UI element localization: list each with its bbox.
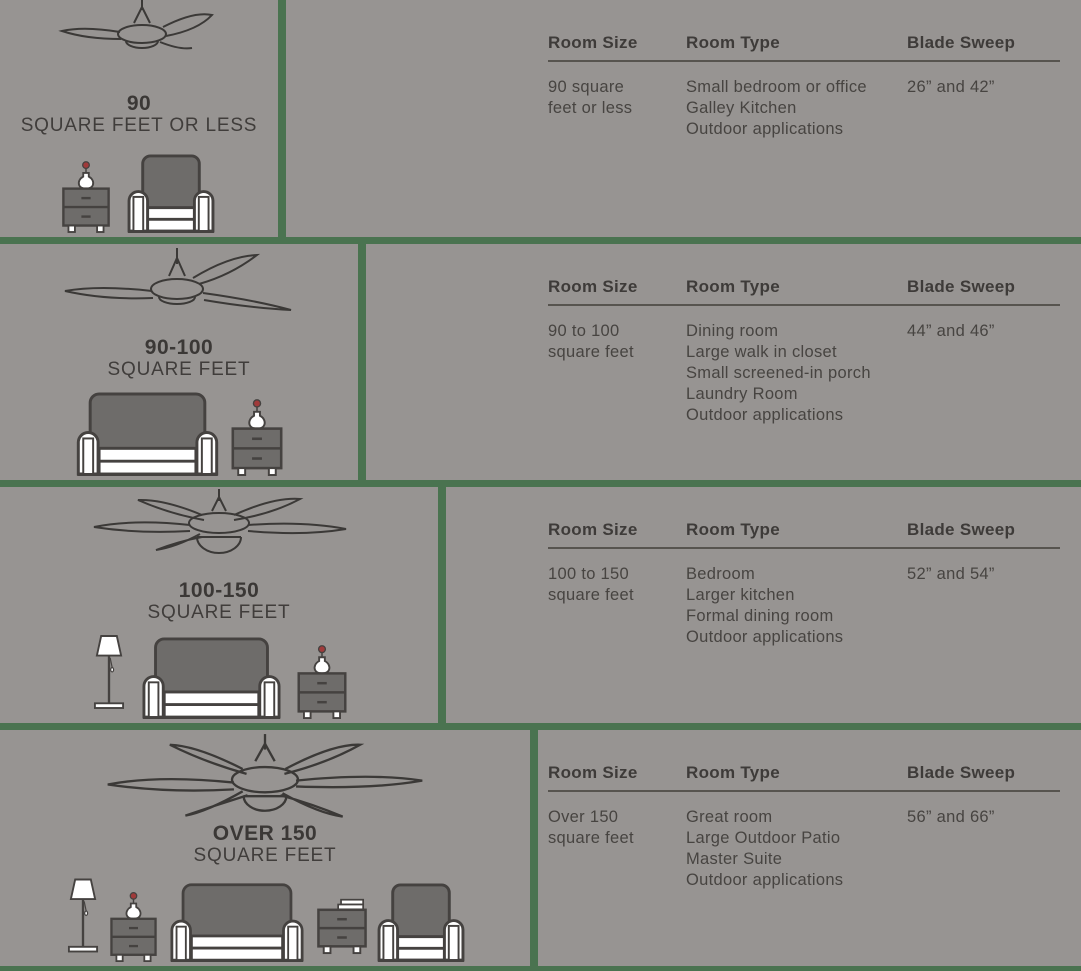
- blade-sweep-cell: 52” and 54”: [907, 564, 1060, 648]
- size-table: Room Size Room Type Blade Sweep 90 to 10…: [548, 244, 1060, 426]
- nightstand-with-vase-icon: [296, 643, 348, 719]
- blade-sweep-cell: 56” and 66”: [907, 807, 1060, 891]
- illustration-panel: 90 SQUARE FEET OR LESS: [0, 0, 278, 237]
- room-size-title: 90-100: [0, 337, 358, 359]
- armchair-icon: [126, 153, 216, 233]
- room-size-cell: Over 150square feet: [548, 807, 686, 891]
- size-table: Room Size Room Type Blade Sweep 90 squar…: [548, 0, 1060, 140]
- furniture-illustrations: [0, 153, 278, 233]
- column-header-room-type: Room Type: [686, 0, 907, 53]
- floor-lamp-icon: [65, 869, 101, 962]
- horizontal-divider: [0, 480, 1081, 487]
- nightstand-with-books-icon: [317, 898, 367, 962]
- room-size-cell: 100 to 150square feet: [548, 564, 686, 648]
- furniture-illustrations: [0, 391, 358, 476]
- loveseat-icon: [139, 636, 284, 719]
- room-type-cell: Small bedroom or officeGalley KitchenOut…: [686, 77, 907, 140]
- column-header-room-type: Room Type: [686, 244, 907, 297]
- horizontal-divider: [0, 237, 1081, 244]
- blade-sweep-cell: 26” and 42”: [907, 77, 1060, 140]
- row-over-150: OVER 150 SQUARE FEET Room Size Room Type…: [0, 730, 1081, 966]
- room-size-subtitle: SQUARE FEET: [0, 602, 438, 624]
- column-header-room-size: Room Size: [548, 244, 686, 297]
- column-header-room-size: Room Size: [548, 730, 686, 783]
- floor-lamp-icon: [91, 625, 127, 719]
- armchair-icon: [376, 882, 466, 962]
- row-90-or-less: 90 SQUARE FEET OR LESS Room Size Room Ty…: [0, 0, 1081, 237]
- column-header-blade-sweep: Blade Sweep: [907, 730, 1060, 783]
- room-size-cell: 90 squarefeet or less: [548, 77, 686, 140]
- nightstand-with-vase-icon: [62, 159, 110, 233]
- room-size-label: 90 SQUARE FEET OR LESS: [0, 93, 278, 137]
- header-underline: [548, 304, 1060, 306]
- ceiling-fan-3-blade-icon: [59, 248, 299, 332]
- size-table: Room Size Room Type Blade Sweep 100 to 1…: [548, 487, 1060, 648]
- room-size-subtitle: SQUARE FEET OR LESS: [0, 115, 278, 137]
- ceiling-fan-5-blade-light-icon: [84, 489, 354, 581]
- loveseat-icon: [75, 391, 220, 476]
- row-90-100: 90-100 SQUARE FEET Room Size Room Type B…: [0, 244, 1081, 480]
- room-size-label: 90-100 SQUARE FEET: [0, 337, 358, 381]
- nightstand-with-vase-icon: [231, 397, 283, 476]
- row-100-150: 100-150 SQUARE FEET Room Size Room Type …: [0, 487, 1081, 723]
- vertical-divider: [438, 487, 446, 723]
- illustration-panel: OVER 150 SQUARE FEET: [0, 730, 530, 966]
- vertical-divider: [358, 244, 366, 480]
- room-size-title: OVER 150: [0, 823, 530, 845]
- column-header-blade-sweep: Blade Sweep: [907, 244, 1060, 297]
- room-size-title: 100-150: [0, 580, 438, 602]
- room-size-title: 90: [0, 93, 278, 115]
- vertical-divider: [278, 0, 286, 237]
- room-size-label: 100-150 SQUARE FEET: [0, 580, 438, 624]
- fan-size-guide: 90 SQUARE FEET OR LESS Room Size Room Ty…: [0, 0, 1081, 971]
- column-header-room-type: Room Type: [686, 487, 907, 540]
- illustration-panel: 100-150 SQUARE FEET: [0, 487, 438, 723]
- bottom-border: [0, 966, 1081, 971]
- room-size-subtitle: SQUARE FEET: [0, 359, 358, 381]
- illustration-panel: 90-100 SQUARE FEET: [0, 244, 358, 480]
- nightstand-with-vase-icon: [110, 890, 157, 962]
- size-table: Room Size Room Type Blade Sweep Over 150…: [548, 730, 1060, 891]
- header-underline: [548, 60, 1060, 62]
- column-header-blade-sweep: Blade Sweep: [907, 487, 1060, 540]
- furniture-illustrations: [0, 869, 530, 962]
- column-header-room-size: Room Size: [548, 487, 686, 540]
- horizontal-divider: [0, 723, 1081, 730]
- room-type-cell: Dining roomLarge walk in closetSmall scr…: [686, 321, 907, 426]
- furniture-illustrations: [0, 625, 438, 719]
- vertical-divider: [530, 730, 538, 966]
- column-header-blade-sweep: Blade Sweep: [907, 0, 1060, 53]
- room-size-subtitle: SQUARE FEET: [0, 845, 530, 867]
- loveseat-icon: [166, 882, 308, 962]
- room-type-cell: Great roomLarge Outdoor PatioMaster Suit…: [686, 807, 907, 891]
- room-size-label: OVER 150 SQUARE FEET: [0, 823, 530, 867]
- header-underline: [548, 790, 1060, 792]
- room-type-cell: BedroomLarger kitchenFormal dining roomO…: [686, 564, 907, 648]
- column-header-room-type: Room Type: [686, 730, 907, 783]
- blade-sweep-cell: 44” and 46”: [907, 321, 1060, 426]
- header-underline: [548, 547, 1060, 549]
- room-size-cell: 90 to 100square feet: [548, 321, 686, 426]
- ceiling-fan-2-blade-icon: [54, 0, 224, 72]
- column-header-room-size: Room Size: [548, 0, 686, 53]
